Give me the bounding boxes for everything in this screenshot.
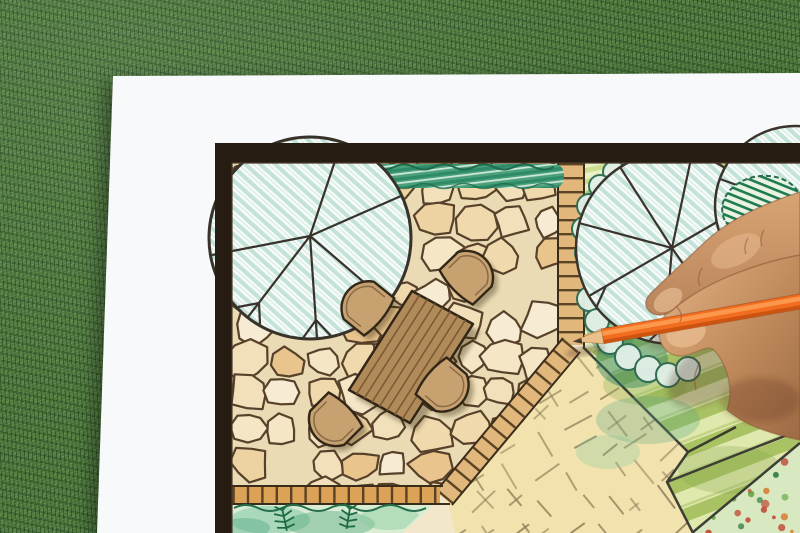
flower-dot — [781, 513, 788, 520]
flagstone — [267, 413, 294, 444]
flower-dot — [745, 517, 750, 522]
flagstone — [263, 379, 299, 404]
flower-dot — [782, 494, 789, 501]
flower-dot — [734, 510, 741, 517]
flower-dot — [763, 488, 769, 494]
photo-stage — [0, 0, 800, 533]
flower-dot — [778, 524, 785, 531]
hand-lower-shadow — [720, 378, 800, 422]
flower-dot — [761, 507, 767, 513]
fern-bed — [220, 503, 434, 533]
garden-plan-illustration — [0, 0, 800, 533]
flower-dot — [772, 516, 776, 520]
flower-dot — [761, 500, 769, 508]
flower-dot — [738, 523, 744, 529]
flagstone — [484, 378, 514, 404]
flagstone — [380, 452, 404, 474]
flagstone — [456, 205, 498, 241]
flower-dot — [773, 472, 779, 478]
flagstone — [189, 458, 219, 482]
flower-dot — [748, 489, 752, 493]
